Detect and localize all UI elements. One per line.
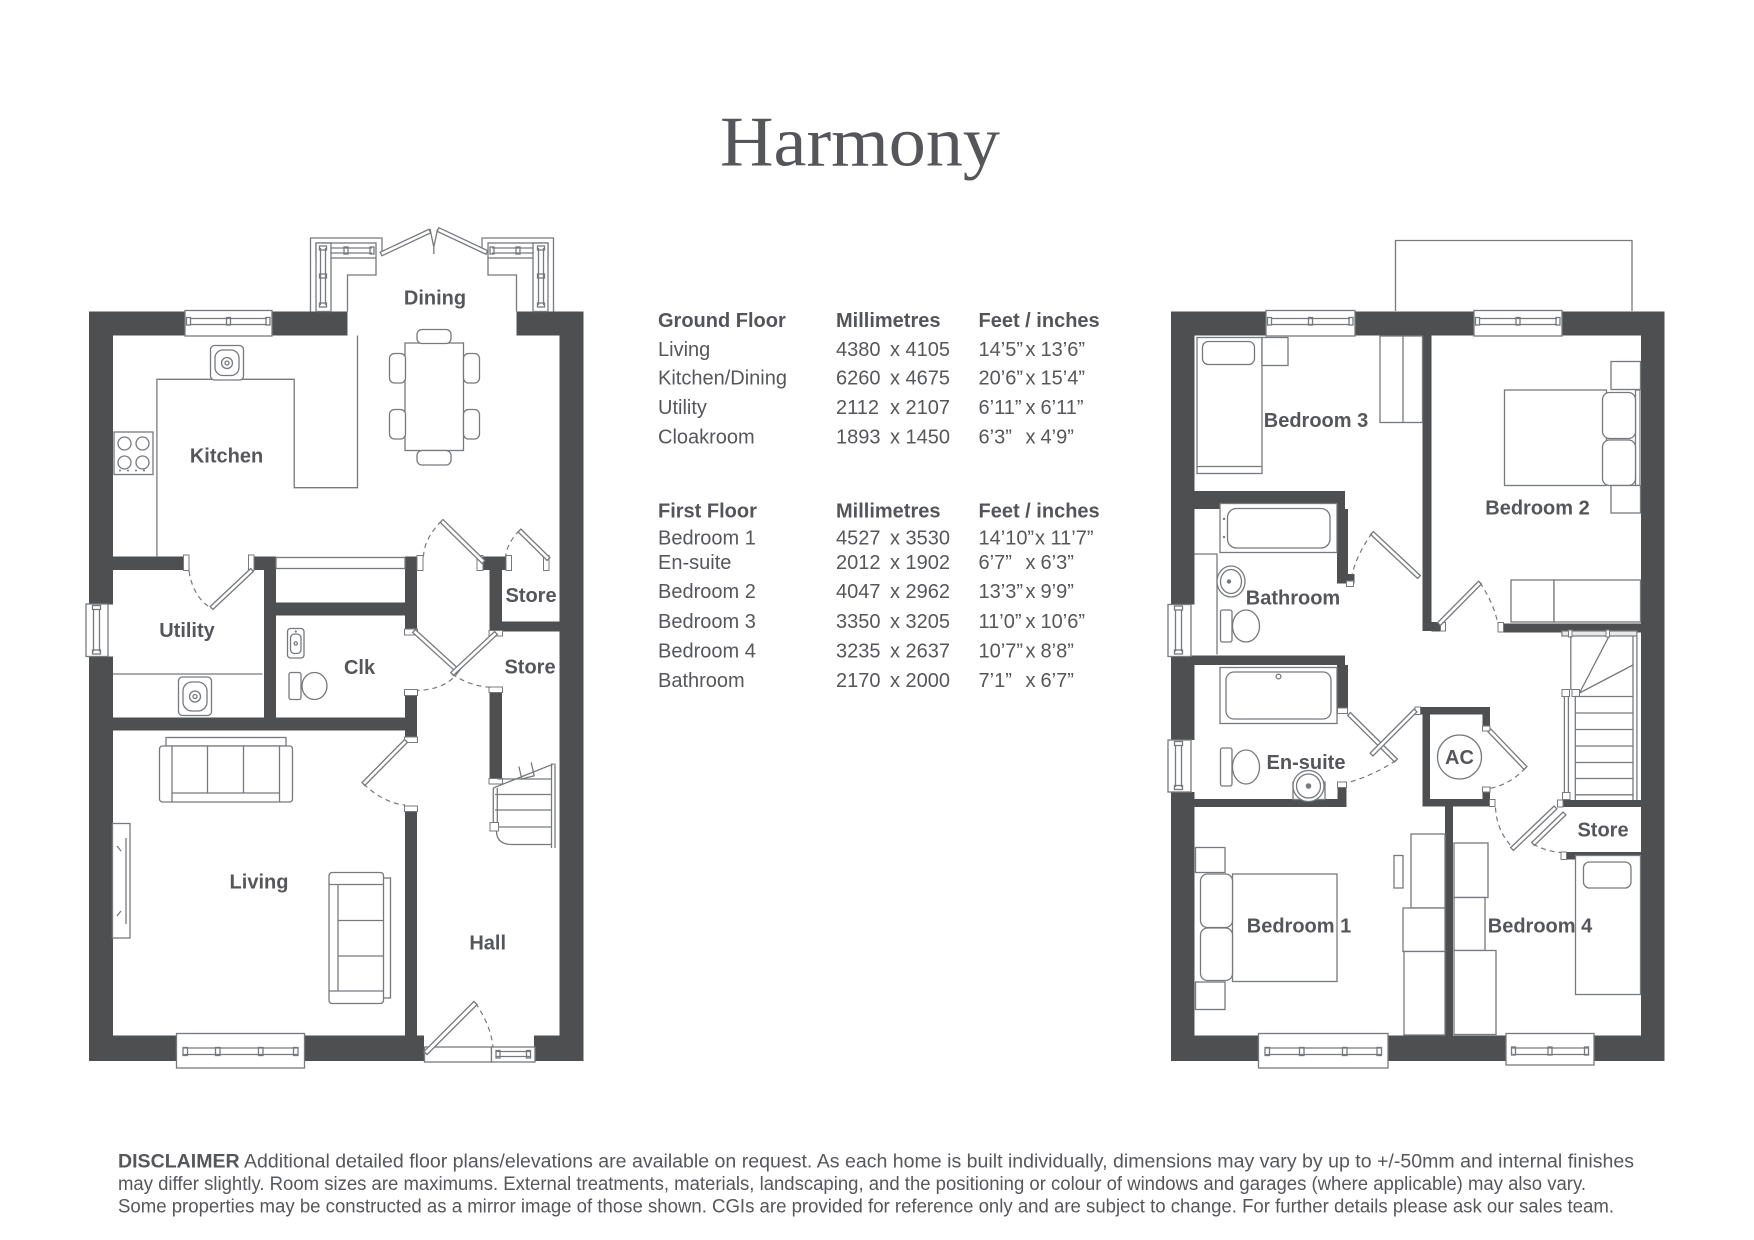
svg-text:Utility: Utility xyxy=(159,620,215,642)
svg-text:2012: 2012 xyxy=(836,552,881,574)
svg-text:1902: 1902 xyxy=(906,552,951,574)
svg-text:DISCLAIMER Additional detailed: DISCLAIMER Additional detailed floor pla… xyxy=(118,1151,1634,1173)
svg-text:Bedroom 2: Bedroom 2 xyxy=(1485,498,1589,520)
svg-text:7’1”: 7’1” xyxy=(979,670,1012,692)
svg-text:x: x xyxy=(1026,640,1036,662)
svg-text:x: x xyxy=(1026,339,1036,361)
svg-text:Millimetres: Millimetres xyxy=(836,310,940,332)
svg-text:1450: 1450 xyxy=(906,427,951,449)
svg-text:Store: Store xyxy=(504,657,555,679)
svg-text:2107: 2107 xyxy=(906,397,951,419)
svg-text:6’11”: 6’11” xyxy=(979,397,1022,419)
svg-text:Feet / inches: Feet / inches xyxy=(979,501,1100,523)
svg-text:x: x xyxy=(890,527,900,549)
svg-text:Kitchen: Kitchen xyxy=(190,446,263,468)
svg-text:3530: 3530 xyxy=(906,527,951,549)
svg-text:may differ slightly. Room size: may differ slightly. Room sizes are maxi… xyxy=(118,1173,1586,1195)
svg-text:x: x xyxy=(890,368,900,390)
svg-text:2170: 2170 xyxy=(836,670,881,692)
svg-text:x: x xyxy=(1026,552,1036,574)
svg-text:Millimetres: Millimetres xyxy=(836,501,940,523)
svg-text:4380: 4380 xyxy=(836,339,881,361)
svg-text:Ground Floor: Ground Floor xyxy=(658,310,786,332)
svg-text:4105: 4105 xyxy=(906,339,951,361)
svg-text:Some properties may be constru: Some properties may be constructed as a … xyxy=(118,1196,1614,1218)
svg-text:En-suite: En-suite xyxy=(658,552,731,574)
svg-text:3205: 3205 xyxy=(906,611,951,633)
svg-text:x: x xyxy=(1026,670,1036,692)
svg-text:x: x xyxy=(890,552,900,574)
svg-text:x: x xyxy=(1026,368,1036,390)
svg-text:x: x xyxy=(1026,581,1036,603)
svg-text:9’9”: 9’9” xyxy=(1041,581,1074,603)
svg-text:6’7”: 6’7” xyxy=(979,552,1012,574)
svg-text:2637: 2637 xyxy=(906,640,951,662)
svg-text:Bathroom: Bathroom xyxy=(658,670,745,692)
svg-text:Bedroom 1: Bedroom 1 xyxy=(658,527,756,549)
svg-text:x: x xyxy=(890,427,900,449)
svg-text:x: x xyxy=(1026,397,1036,419)
svg-text:Bedroom 3: Bedroom 3 xyxy=(658,611,756,633)
svg-text:Bedroom 3: Bedroom 3 xyxy=(1264,410,1368,432)
svg-text:Kitchen/Dining: Kitchen/Dining xyxy=(658,368,787,390)
svg-text:15’4”: 15’4” xyxy=(1041,368,1085,390)
svg-text:Store: Store xyxy=(505,585,556,607)
svg-text:x: x xyxy=(890,581,900,603)
svg-text:4047: 4047 xyxy=(836,581,881,603)
svg-text:Hall: Hall xyxy=(469,932,506,954)
svg-text:4’9”: 4’9” xyxy=(1041,427,1074,449)
svg-text:Clk: Clk xyxy=(344,657,376,679)
svg-text:x: x xyxy=(890,670,900,692)
svg-text:2962: 2962 xyxy=(906,581,951,603)
svg-text:6’7”: 6’7” xyxy=(1041,670,1074,692)
svg-text:Store: Store xyxy=(1577,820,1628,842)
svg-text:6’3”: 6’3” xyxy=(1041,552,1074,574)
svg-text:Bedroom 4: Bedroom 4 xyxy=(1488,916,1593,938)
svg-text:14’10”: 14’10” xyxy=(979,527,1035,549)
svg-text:3235: 3235 xyxy=(836,640,881,662)
svg-text:AC: AC xyxy=(1445,747,1474,769)
svg-text:x: x xyxy=(890,397,900,419)
svg-text:13’3”: 13’3” xyxy=(979,581,1023,603)
svg-text:En-suite: En-suite xyxy=(1267,752,1346,774)
svg-text:x: x xyxy=(1026,611,1036,633)
svg-text:14’5”: 14’5” xyxy=(979,339,1023,361)
svg-text:Living: Living xyxy=(658,339,710,361)
svg-text:6’3”: 6’3” xyxy=(979,427,1012,449)
svg-text:Cloakroom: Cloakroom xyxy=(658,427,755,449)
svg-text:x: x xyxy=(890,611,900,633)
svg-text:11’0”: 11’0” xyxy=(979,611,1022,633)
svg-text:4675: 4675 xyxy=(906,368,951,390)
svg-text:Bathroom: Bathroom xyxy=(1246,588,1340,610)
svg-text:Feet / inches: Feet / inches xyxy=(979,310,1100,332)
svg-text:10’7”: 10’7” xyxy=(979,640,1023,662)
svg-text:11’7”: 11’7” xyxy=(1051,527,1094,549)
svg-text:20’6”: 20’6” xyxy=(979,368,1023,390)
svg-text:Harmony: Harmony xyxy=(720,104,1001,182)
svg-text:6’11”: 6’11” xyxy=(1041,397,1084,419)
svg-text:2112: 2112 xyxy=(836,397,879,419)
svg-text:Utility: Utility xyxy=(658,397,707,419)
svg-text:13’6”: 13’6” xyxy=(1041,339,1085,361)
svg-text:Dining: Dining xyxy=(404,288,466,310)
svg-text:3350: 3350 xyxy=(836,611,881,633)
svg-text:Living: Living xyxy=(230,872,289,894)
svg-text:1893: 1893 xyxy=(836,427,881,449)
svg-text:x: x xyxy=(1035,527,1045,549)
svg-text:2000: 2000 xyxy=(906,670,951,692)
svg-text:4527: 4527 xyxy=(836,527,881,549)
svg-text:Bedroom 2: Bedroom 2 xyxy=(658,581,756,603)
svg-text:10’6”: 10’6” xyxy=(1041,611,1085,633)
svg-text:Bedroom 4: Bedroom 4 xyxy=(658,640,756,662)
svg-text:6260: 6260 xyxy=(836,368,881,390)
svg-text:x: x xyxy=(890,640,900,662)
svg-text:8’8”: 8’8” xyxy=(1041,640,1074,662)
svg-text:Bedroom 1: Bedroom 1 xyxy=(1247,916,1351,938)
svg-text:x: x xyxy=(890,339,900,361)
svg-text:First Floor: First Floor xyxy=(658,501,757,523)
svg-text:x: x xyxy=(1026,427,1036,449)
